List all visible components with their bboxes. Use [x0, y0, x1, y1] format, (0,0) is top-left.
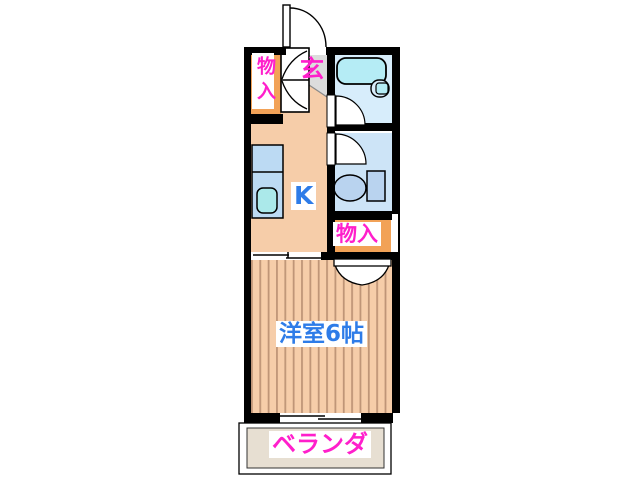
floor-plan: 物入 玄 K 物入 洋室6帖 ベランダ: [0, 0, 638, 480]
wall-left: [244, 47, 251, 421]
toilet-tank: [367, 171, 385, 201]
main-room-label: 洋室6帖: [276, 321, 367, 347]
wall-closet-top: [244, 114, 283, 124]
veranda-label: ベランダ: [269, 431, 371, 458]
sliding-door-kitchen-room: [253, 252, 321, 258]
bath-faucet: [371, 80, 389, 97]
wall-top-right: [326, 47, 400, 55]
wall-toilet-closet: [327, 211, 392, 220]
wall-bottom-right: [361, 413, 393, 423]
wall-right-lower: [392, 260, 400, 413]
kitchen-label: K: [291, 182, 316, 210]
window-room-veranda: [280, 416, 361, 419]
wall-center-upper: [327, 47, 335, 95]
entrance-door: [283, 5, 326, 47]
entrance-label: 玄: [300, 57, 324, 82]
closet-top-label: 物入: [252, 53, 274, 109]
wall-bottom-left: [244, 413, 280, 423]
kitchen-sink: [257, 188, 277, 213]
closet-right-label: 物入: [333, 222, 381, 246]
wall-center-mid: [327, 127, 335, 133]
toilet-bowl: [334, 175, 366, 201]
wall-right-upper: [392, 47, 400, 214]
